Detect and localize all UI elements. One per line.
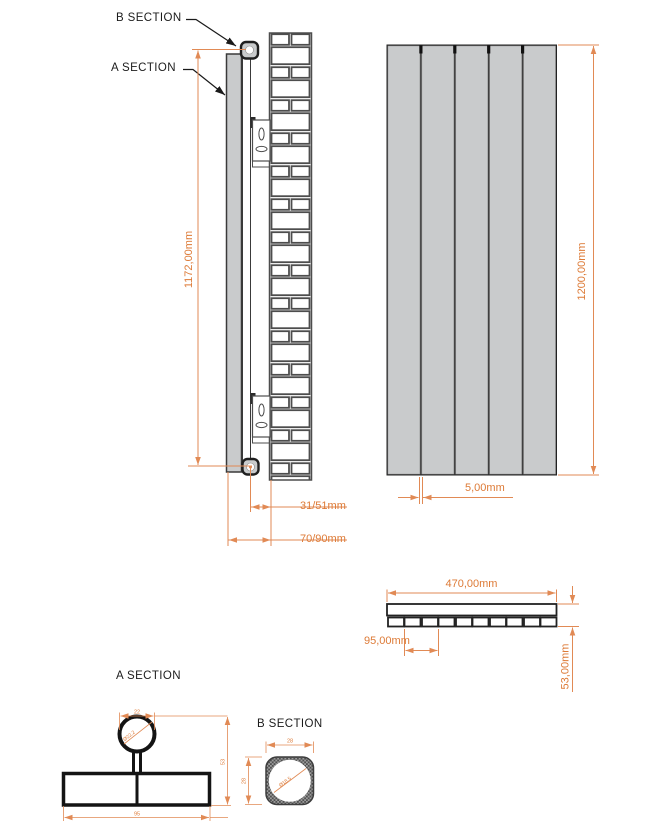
- a-section-width-label: 95: [134, 812, 140, 818]
- brick-wall: [270, 33, 312, 480]
- b-section-leader-arrow: [186, 20, 236, 47]
- top-view-front-bar: [387, 604, 557, 616]
- drawing-linework: 22 Ø22,2 53 95 28 28 Ø18,5: [0, 0, 671, 827]
- technical-drawing-canvas: 22 Ø22,2 53 95 28 28 Ø18,5: [0, 0, 671, 827]
- radiator-panel-side: [227, 54, 242, 472]
- a-section-leader-arrow: [183, 70, 225, 96]
- top-view-dimensions: [387, 586, 579, 692]
- panel-pitch-dimension-label: 95,00mm: [364, 636, 410, 647]
- b-section-callout-label: B SECTION: [116, 13, 182, 25]
- panel-gap-dimension-label: 5,00mm: [465, 483, 505, 494]
- top-view: [387, 586, 579, 692]
- b-section-title: B SECTION: [257, 719, 323, 731]
- top-depth-dimension-label: 53,00mm: [561, 637, 572, 697]
- b-section-width-label: 28: [287, 739, 293, 745]
- front-to-wall-dimension-label: 70/90mm: [300, 534, 346, 545]
- top-collector-pipe: [241, 42, 258, 59]
- side-height-dimension-label: 1172,00mm: [184, 212, 195, 307]
- radiator-front-panels: [388, 46, 556, 474]
- a-section-title: A SECTION: [116, 671, 181, 683]
- front-view: [387, 45, 599, 504]
- top-view-panel-sections: [388, 618, 557, 627]
- b-section-profile: 28 28 Ø18,5: [242, 739, 314, 805]
- collector-tube-strip: [243, 56, 251, 468]
- top-width-dimension-label: 470,00mm: [431, 579, 512, 590]
- a-section-tube-width-label: 22: [134, 710, 140, 716]
- a-section-callout-label: A SECTION: [111, 63, 176, 75]
- wall-bracket-upper: [251, 117, 271, 167]
- a-section-profile: 22 Ø22,2 53 95: [64, 710, 232, 822]
- tube-to-wall-dimension-label: 31/51mm: [300, 501, 346, 512]
- a-section-depth-label: 53: [221, 759, 227, 765]
- wall-bracket-lower: [251, 393, 271, 443]
- side-view: [183, 20, 347, 547]
- front-height-dimension-label: 1200,00mm: [577, 224, 588, 319]
- b-section-height-label: 28: [242, 778, 248, 784]
